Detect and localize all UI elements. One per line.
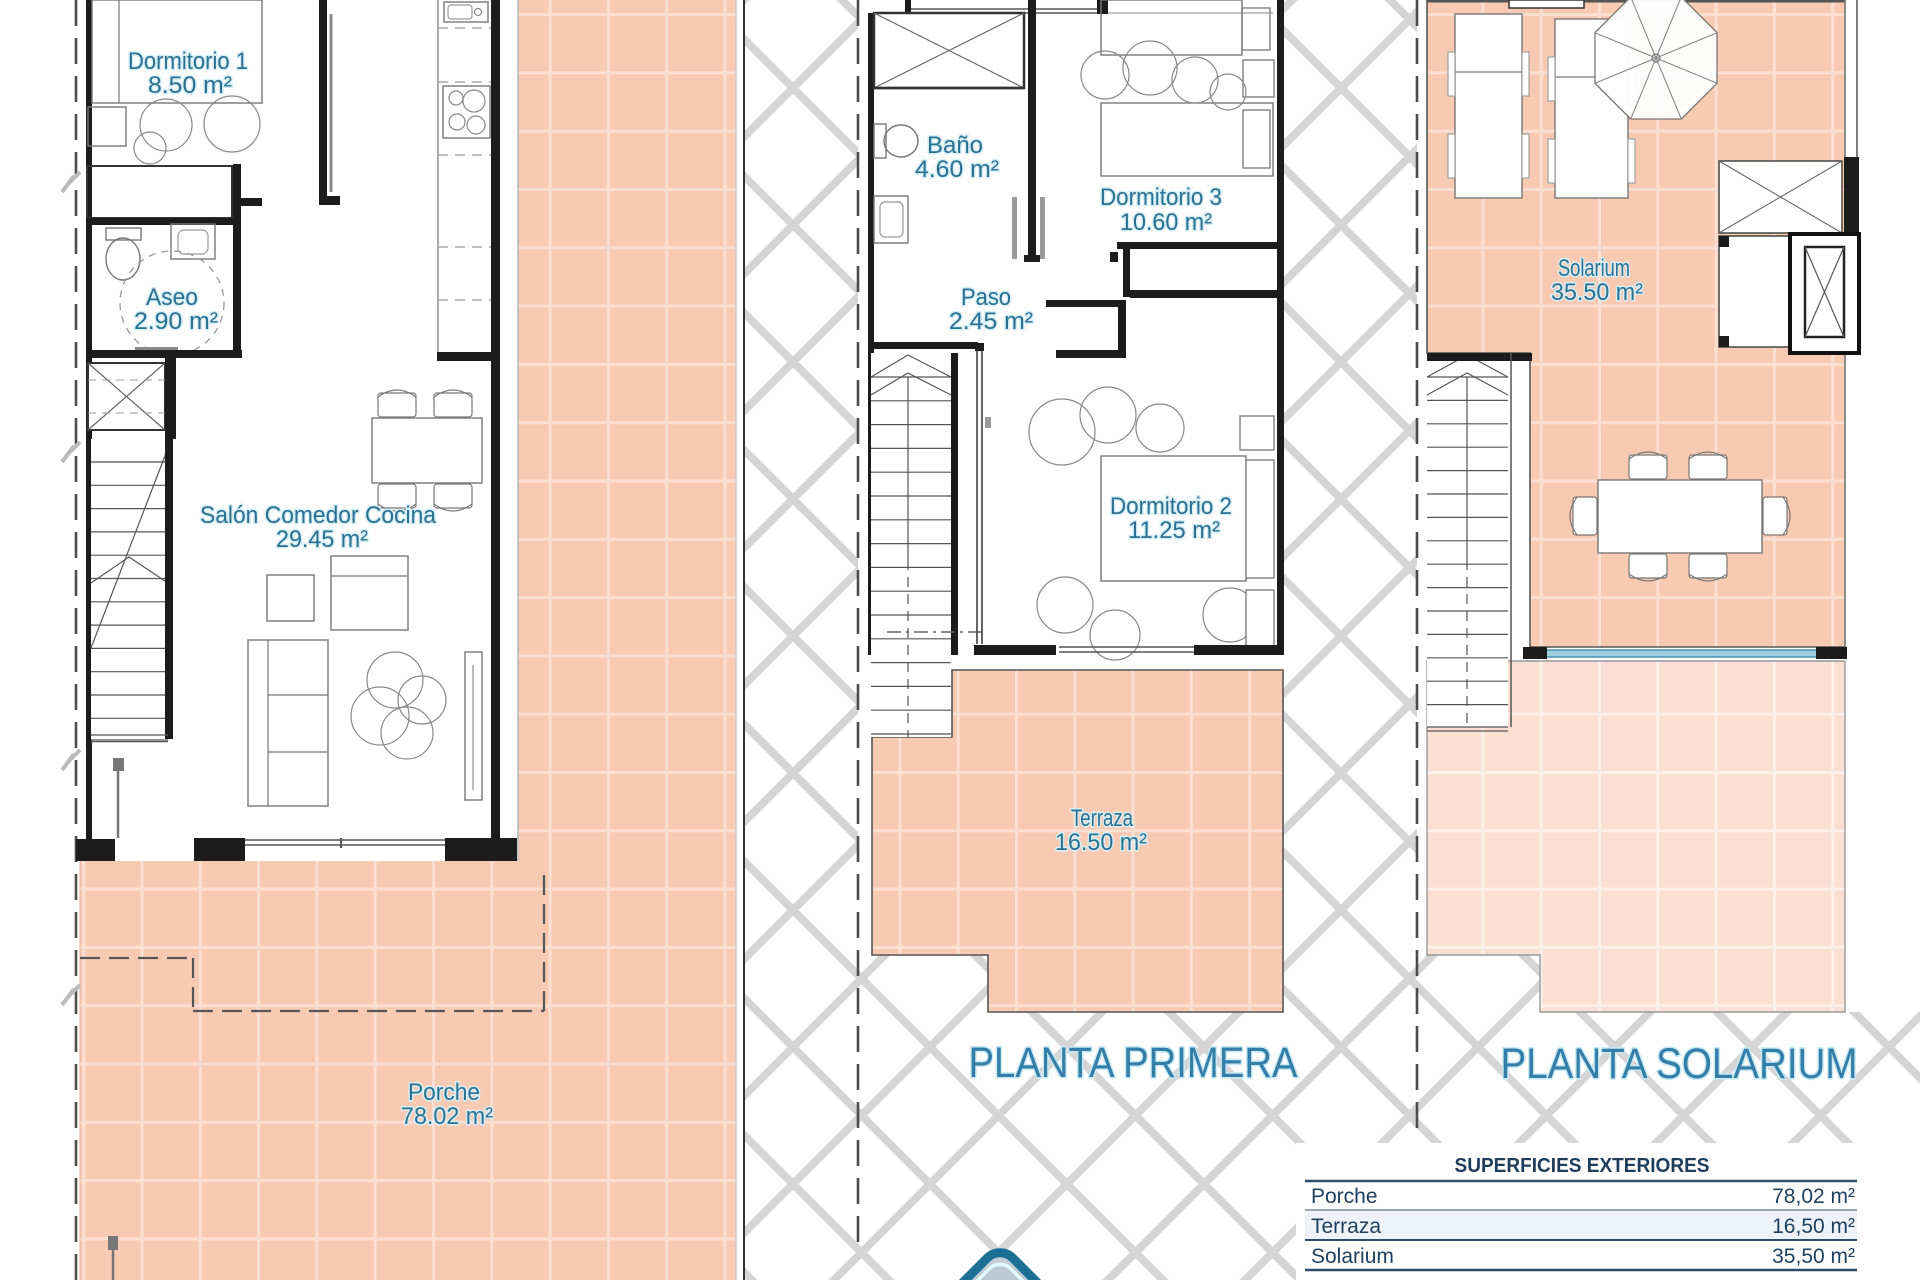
svg-text:Baño: Baño	[927, 132, 983, 159]
svg-text:Paso: Paso	[961, 284, 1011, 311]
svg-text:2.90 m²: 2.90 m²	[134, 308, 218, 335]
svg-text:PLANTA PRIMERA: PLANTA PRIMERA	[969, 1039, 1298, 1087]
svg-text:PLANTA SOLARIUM: PLANTA SOLARIUM	[1501, 1040, 1858, 1088]
svg-text:11.25 m²: 11.25 m²	[1128, 517, 1220, 544]
svg-text:2.45 m²: 2.45 m²	[949, 308, 1033, 335]
svg-text:8.50 m²: 8.50 m²	[148, 72, 232, 99]
svg-text:SUPERFICIES EXTERIORES: SUPERFICIES EXTERIORES	[1455, 1155, 1710, 1177]
svg-text:35,50 m²: 35,50 m²	[1772, 1245, 1855, 1268]
svg-text:16.50 m²: 16.50 m²	[1055, 829, 1147, 856]
svg-text:Dormitorio 3: Dormitorio 3	[1100, 184, 1222, 211]
svg-text:16,50 m²: 16,50 m²	[1772, 1215, 1855, 1238]
svg-text:4.60 m²: 4.60 m²	[915, 156, 999, 183]
svg-text:78.02 m²: 78.02 m²	[401, 1103, 493, 1130]
svg-text:Aseo: Aseo	[146, 284, 198, 311]
svg-text:35.50 m²: 35.50 m²	[1551, 279, 1643, 306]
svg-text:Solarium: Solarium	[1311, 1245, 1394, 1268]
svg-text:Terraza: Terraza	[1071, 805, 1134, 832]
svg-text:10.60 m²: 10.60 m²	[1120, 209, 1212, 236]
svg-text:29.45 m²: 29.45 m²	[276, 526, 368, 553]
svg-text:Porche: Porche	[1311, 1185, 1378, 1208]
svg-text:Dormitorio 2: Dormitorio 2	[1110, 493, 1232, 520]
svg-text:Solarium: Solarium	[1558, 255, 1630, 282]
svg-text:Porche: Porche	[408, 1079, 480, 1106]
svg-text:Terraza: Terraza	[1311, 1215, 1381, 1238]
svg-text:Salón Comedor Cocina: Salón Comedor Cocina	[200, 502, 437, 529]
svg-text:78,02 m²: 78,02 m²	[1772, 1185, 1855, 1208]
svg-text:Dormitorio 1: Dormitorio 1	[128, 48, 248, 75]
